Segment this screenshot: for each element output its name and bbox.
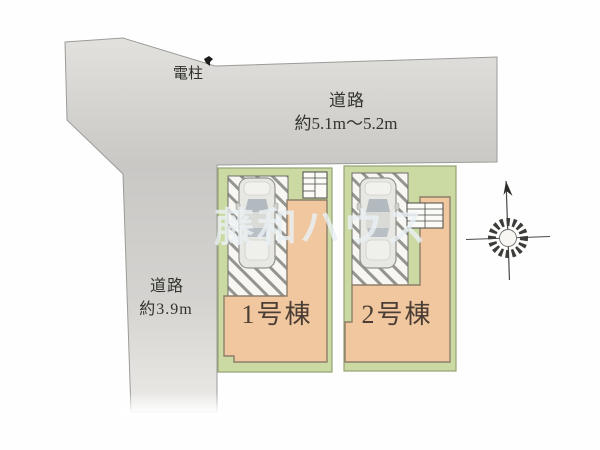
compass-icon bbox=[464, 180, 551, 282]
watermark: 藤和ハウス bbox=[214, 205, 429, 250]
top-road-width: 約5.1m〜5.2m bbox=[295, 114, 398, 133]
left-road-label: 道路 bbox=[150, 277, 184, 295]
lot-1-label: 1号棟 bbox=[241, 300, 312, 329]
site-plan-canvas: 1号棟 2号棟 道路 約5.1m〜5.2m 道路 約3.9m 電柱 藤和ハウス bbox=[0, 0, 600, 450]
top-road-label: 道路 bbox=[329, 91, 365, 110]
left-road-width: 約3.9m bbox=[139, 300, 192, 318]
entrance-steps-icon bbox=[303, 172, 327, 198]
site-plan: 1号棟 2号棟 道路 約5.1m〜5.2m 道路 約3.9m 電柱 藤和ハウス bbox=[0, 0, 600, 450]
road-bottom-fade bbox=[118, 392, 220, 414]
lot-1: 1号棟 bbox=[218, 168, 332, 372]
lot-2-label: 2号棟 bbox=[361, 300, 432, 329]
utility-pole-label: 電柱 bbox=[173, 65, 203, 82]
lot-2: 2号棟 bbox=[344, 166, 456, 371]
